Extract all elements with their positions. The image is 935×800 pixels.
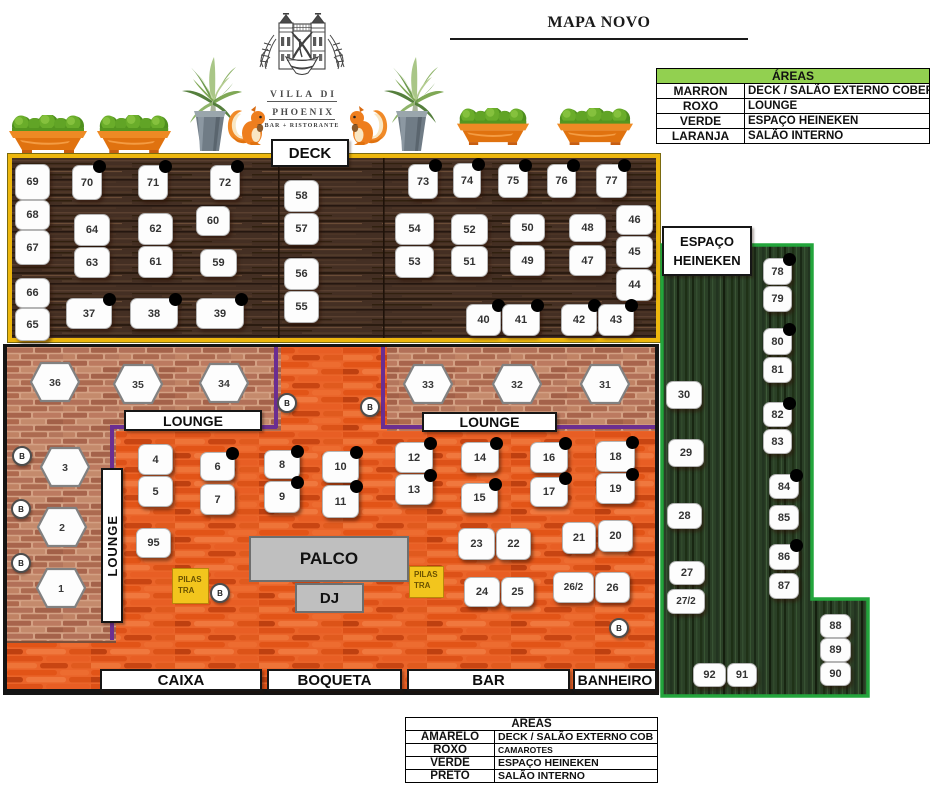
svg-text:32: 32 xyxy=(511,379,523,391)
svg-text:31: 31 xyxy=(599,379,611,391)
svg-text:35: 35 xyxy=(132,379,144,391)
svg-text:36: 36 xyxy=(49,377,61,389)
svg-text:34: 34 xyxy=(218,378,230,390)
svg-text:3: 3 xyxy=(62,462,68,474)
svg-text:2: 2 xyxy=(59,522,65,534)
svg-text:33: 33 xyxy=(422,379,434,391)
svg-text:1: 1 xyxy=(58,583,64,595)
